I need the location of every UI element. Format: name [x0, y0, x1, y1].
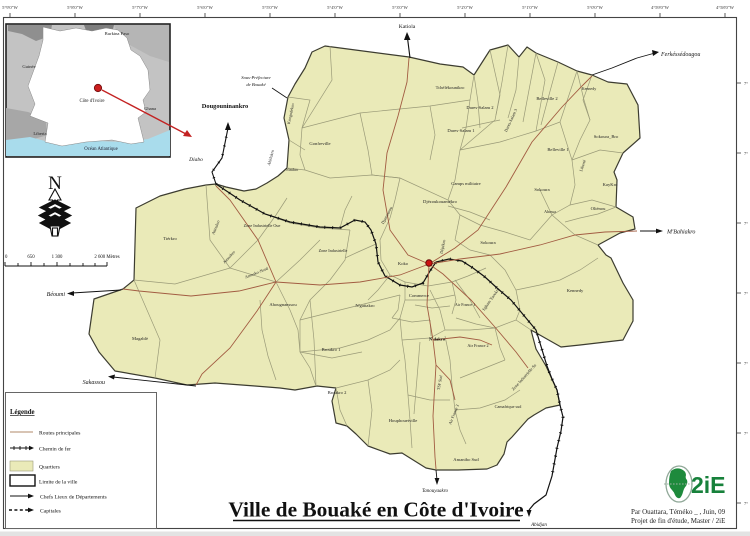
- svg-text:5°0'0"W: 5°0'0"W: [587, 5, 603, 10]
- svg-text:Océan Atlantique: Océan Atlantique: [84, 147, 117, 152]
- svg-text:Camafrique sud: Camafrique sud: [495, 404, 523, 409]
- svg-text:Broukro 2: Broukro 2: [328, 390, 347, 395]
- svg-text:5°5'0"W: 5°5'0"W: [262, 5, 278, 10]
- svg-text:7°: 7°: [744, 501, 748, 506]
- svg-text:5°9'0"W: 5°9'0"W: [2, 5, 18, 10]
- svg-text:Magablè: Magablè: [132, 336, 148, 341]
- svg-text:Dares-Salam 1: Dares-Salam 1: [447, 128, 475, 133]
- svg-text:7°: 7°: [744, 81, 748, 86]
- svg-text:Ghana: Ghana: [144, 106, 156, 111]
- svg-text:650: 650: [27, 255, 35, 260]
- svg-text:Djézoukouamékro: Djézoukouamékro: [423, 199, 458, 204]
- svg-text:Camps militaire: Camps militaire: [451, 181, 480, 186]
- svg-text:Tiérkro: Tiérkro: [163, 236, 177, 241]
- svg-text:Oliénou: Oliénou: [591, 206, 607, 211]
- svg-text:Katiola: Katiola: [399, 24, 416, 30]
- svg-text:7°: 7°: [744, 151, 748, 156]
- svg-text:Amanibo Sud: Amanibo Sud: [453, 457, 479, 462]
- svg-text:Commerce: Commerce: [409, 293, 429, 298]
- svg-text:Houphouetville: Houphouetville: [389, 418, 418, 423]
- svg-text:Burkina Faso: Burkina Faso: [105, 31, 130, 36]
- svg-text:Limite de la ville: Limite de la ville: [39, 480, 78, 486]
- svg-text:Chefs Lieux de Départements: Chefs Lieux de Départements: [40, 494, 107, 501]
- svg-text:1 300: 1 300: [52, 255, 63, 260]
- svg-text:Légende: Légende: [10, 409, 35, 416]
- svg-text:Projet de fin d'étude, Master: Projet de fin d'étude, Master / 2iE: [631, 517, 725, 525]
- svg-text:Broukro 1: Broukro 1: [322, 347, 341, 352]
- svg-text:Nimbro: Nimbro: [286, 167, 298, 172]
- svg-text:Gonfreville: Gonfreville: [309, 141, 330, 146]
- svg-text:Zone Industrielle: Zone Industrielle: [319, 248, 348, 253]
- svg-text:Ahossa: Ahossa: [544, 209, 556, 214]
- svg-text:5°6'0"W: 5°6'0"W: [197, 5, 213, 10]
- svg-text:Diabo: Diabo: [188, 157, 203, 163]
- svg-text:de Bouaké: de Bouaké: [246, 82, 266, 87]
- svg-text:5°7'0"W: 5°7'0"W: [132, 5, 148, 10]
- svg-text:Capitales: Capitales: [40, 509, 61, 515]
- svg-text:Liberia: Liberia: [33, 131, 46, 136]
- svg-text:Béoumi: Béoumi: [47, 292, 66, 298]
- svg-text:7°: 7°: [744, 291, 748, 296]
- svg-text:5°2'0"W: 5°2'0"W: [457, 5, 473, 10]
- svg-text:7°: 7°: [744, 361, 748, 366]
- svg-text:7°: 7°: [744, 431, 748, 436]
- svg-text:Air France 2: Air France 2: [467, 343, 488, 348]
- svg-text:Abidjan: Abidjan: [530, 523, 547, 528]
- svg-text:KayKro: KayKro: [603, 182, 619, 187]
- svg-text:Dougouninankro: Dougouninankro: [202, 103, 248, 110]
- svg-text:Guinée: Guinée: [22, 64, 35, 69]
- svg-text:4°58'0"W: 4°58'0"W: [716, 5, 735, 10]
- svg-text:Ahougnanssou: Ahougnanssou: [269, 302, 297, 307]
- svg-text:Zone Industrielle Oue: Zone Industrielle Oue: [244, 223, 281, 228]
- svg-text:Air France 1: Air France 1: [455, 302, 475, 307]
- svg-text:Côte d'Ivoire: Côte d'Ivoire: [80, 99, 105, 104]
- svg-text:Kennedy: Kennedy: [567, 288, 584, 293]
- svg-text:Kennedy: Kennedy: [582, 86, 596, 91]
- svg-text:Sous-Préfecture: Sous-Préfecture: [241, 75, 270, 80]
- svg-text:Routes principales: Routes principales: [39, 431, 80, 437]
- svg-text:Tanouyaakro: Tanouyaakro: [422, 489, 449, 494]
- svg-text:Quartiers: Quartiers: [39, 465, 60, 471]
- svg-text:Ville de Bouaké en Côte d'Ivoi: Ville de Bouaké en Côte d'Ivoire: [228, 498, 523, 522]
- svg-text:5°1'0"W: 5°1'0"W: [522, 5, 538, 10]
- svg-text:N'dakro: N'dakro: [429, 337, 446, 342]
- svg-text:Chemin de fer: Chemin de fer: [39, 446, 71, 453]
- svg-text:2 600 Mètres: 2 600 Mètres: [94, 255, 119, 260]
- svg-text:5°8'0"W: 5°8'0"W: [67, 5, 83, 10]
- svg-text:M'Bahiakro: M'Bahiakro: [666, 230, 695, 236]
- svg-text:Sakassou: Sakassou: [83, 380, 105, 386]
- svg-text:Sokoura: Sokoura: [480, 240, 495, 245]
- svg-text:7°: 7°: [744, 221, 748, 226]
- svg-text:Ferkéssédougou: Ferkéssédougou: [660, 52, 700, 58]
- svg-text:5°4'0"W: 5°4'0"W: [327, 5, 343, 10]
- svg-text:Koko: Koko: [398, 261, 409, 266]
- svg-text:Belleville 1: Belleville 1: [547, 147, 569, 152]
- svg-text:Sokoura: Sokoura: [534, 187, 549, 192]
- svg-text:N'gattakro: N'gattakro: [355, 303, 375, 308]
- svg-text:4°59'0"W: 4°59'0"W: [651, 5, 670, 10]
- svg-text:Par Ouattara, Téméko _ , Juin,: Par Ouattara, Téméko _ , Juin, 09: [631, 508, 726, 516]
- svg-text:Tchélékounikro: Tchélékounikro: [436, 85, 465, 90]
- svg-text:Belleville 2: Belleville 2: [536, 96, 558, 101]
- svg-text:5°3'0"W: 5°3'0"W: [392, 5, 408, 10]
- svg-text:Sokoura_Bro: Sokoura_Bro: [594, 134, 619, 139]
- svg-text:2iE: 2iE: [691, 472, 726, 498]
- svg-text:Dares-Salam 2: Dares-Salam 2: [466, 105, 494, 110]
